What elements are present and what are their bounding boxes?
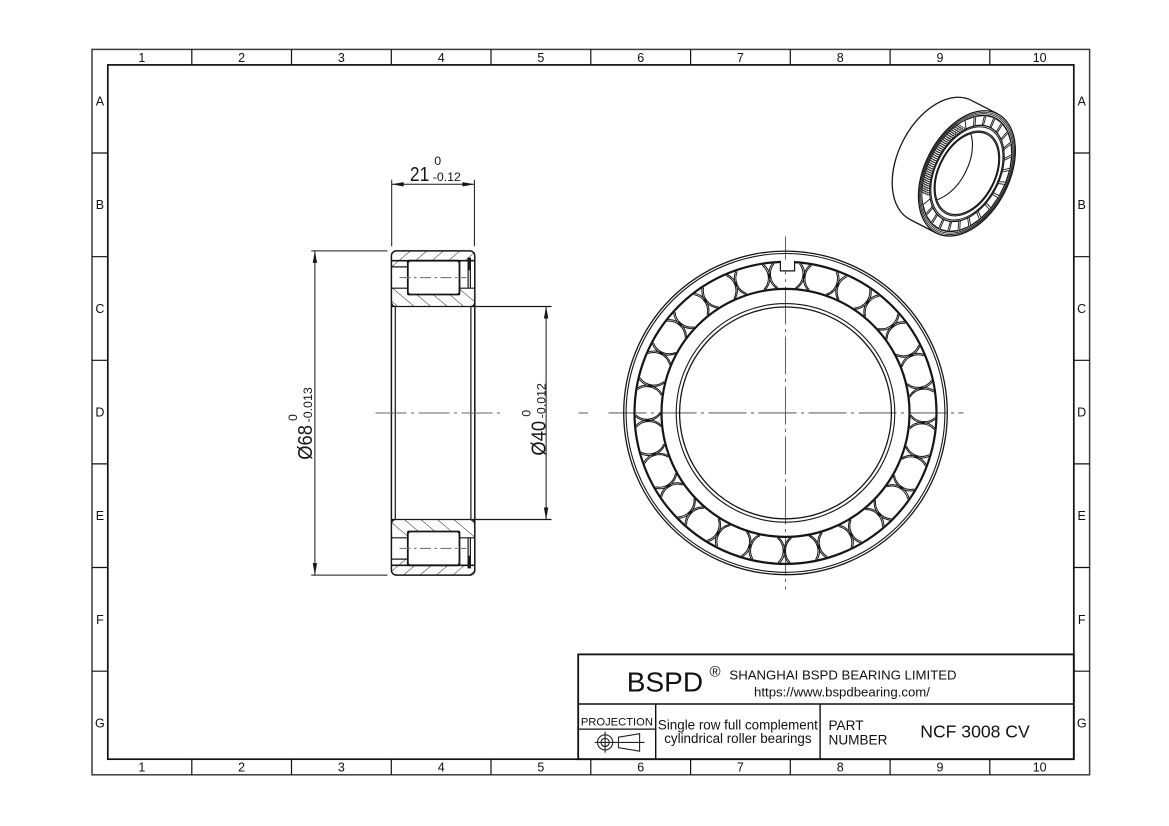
- svg-text:7: 7: [737, 51, 744, 65]
- svg-text:Ø40: Ø40: [529, 421, 551, 456]
- svg-text:8: 8: [837, 51, 844, 65]
- svg-text:D: D: [95, 406, 104, 420]
- svg-text:E: E: [1078, 509, 1086, 523]
- svg-text:SHANGHAI BSPD BEARING LIMITED: SHANGHAI BSPD BEARING LIMITED: [729, 668, 956, 683]
- svg-text:cylindrical roller bearings: cylindrical roller bearings: [664, 731, 812, 746]
- svg-text:D: D: [1077, 406, 1086, 420]
- svg-text:A: A: [1078, 95, 1087, 109]
- svg-text:Ø68: Ø68: [295, 425, 317, 460]
- svg-text:F: F: [96, 613, 104, 627]
- svg-text:https://www.bspdbearing.com/: https://www.bspdbearing.com/: [754, 685, 930, 700]
- svg-text:C: C: [95, 302, 104, 316]
- svg-text:BSPD: BSPD: [627, 667, 703, 698]
- svg-text:0: 0: [519, 410, 533, 417]
- svg-text:A: A: [96, 95, 105, 109]
- svg-text:PART: PART: [829, 718, 864, 733]
- svg-text:PROJECTION: PROJECTION: [581, 716, 653, 728]
- svg-text:C: C: [1077, 302, 1086, 316]
- svg-text:5: 5: [537, 760, 544, 774]
- svg-text:F: F: [1078, 613, 1086, 627]
- svg-text:2: 2: [238, 51, 245, 65]
- svg-text:8: 8: [837, 760, 844, 774]
- svg-text:0: 0: [286, 414, 300, 421]
- svg-text:6: 6: [637, 760, 644, 774]
- svg-text:®: ®: [710, 664, 721, 681]
- svg-text:6: 6: [637, 51, 644, 65]
- svg-text:4: 4: [438, 760, 445, 774]
- svg-text:G: G: [95, 716, 105, 730]
- svg-text:-0.012: -0.012: [534, 383, 548, 418]
- svg-text:NCF 3008 CV: NCF 3008 CV: [920, 722, 1030, 742]
- svg-text:4: 4: [438, 51, 445, 65]
- svg-text:21: 21: [410, 163, 429, 185]
- svg-text:1: 1: [138, 760, 145, 774]
- svg-text:-0.013: -0.013: [301, 387, 315, 422]
- svg-text:B: B: [1078, 198, 1086, 212]
- svg-text:NUMBER: NUMBER: [829, 733, 888, 748]
- svg-text:9: 9: [937, 51, 944, 65]
- svg-text:1: 1: [138, 51, 145, 65]
- svg-text:10: 10: [1033, 760, 1047, 774]
- svg-text:9: 9: [937, 760, 944, 774]
- svg-text:-0.12: -0.12: [433, 170, 461, 184]
- svg-text:10: 10: [1033, 51, 1047, 65]
- svg-text:E: E: [96, 509, 104, 523]
- svg-text:G: G: [1077, 716, 1087, 730]
- svg-text:2: 2: [238, 760, 245, 774]
- svg-text:0: 0: [434, 154, 441, 168]
- svg-text:B: B: [96, 198, 104, 212]
- svg-text:7: 7: [737, 760, 744, 774]
- svg-text:3: 3: [338, 51, 345, 65]
- svg-text:3: 3: [338, 760, 345, 774]
- svg-text:Single row full complement: Single row full complement: [658, 717, 818, 732]
- svg-text:5: 5: [537, 51, 544, 65]
